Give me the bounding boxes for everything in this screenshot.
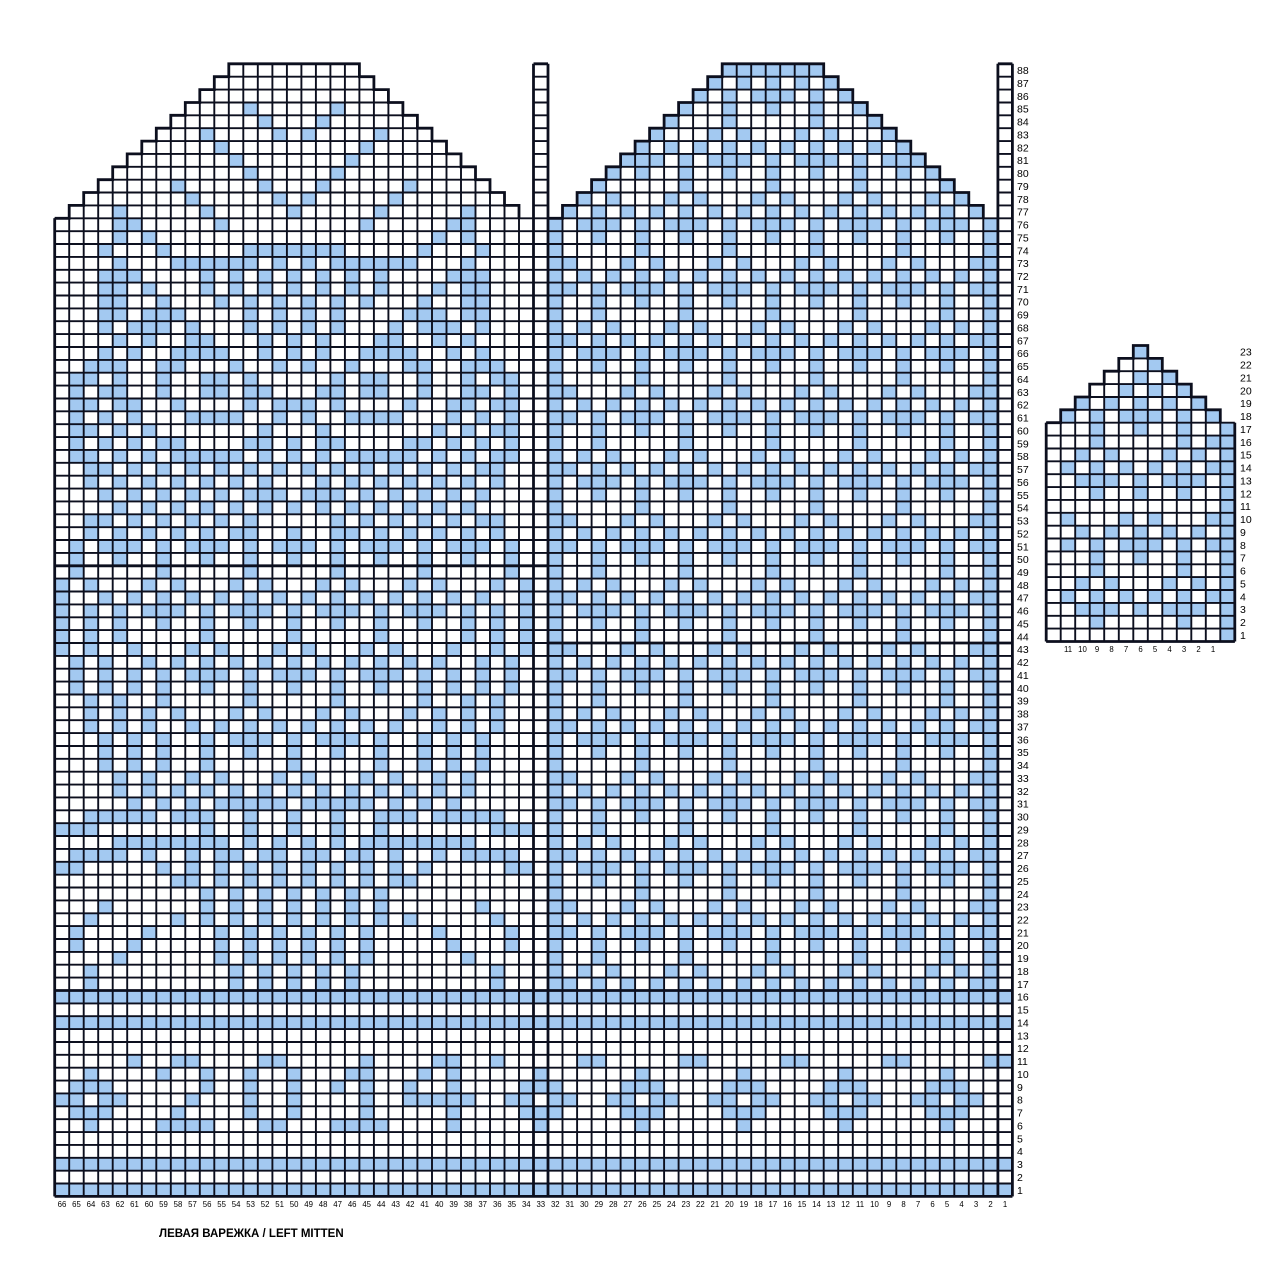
svg-text:2: 2 xyxy=(1240,617,1246,629)
svg-text:65: 65 xyxy=(72,1200,81,1209)
svg-text:10: 10 xyxy=(1078,645,1087,654)
svg-text:3: 3 xyxy=(1182,645,1186,654)
svg-text:59: 59 xyxy=(1017,438,1029,450)
svg-text:18: 18 xyxy=(754,1200,763,1209)
svg-text:53: 53 xyxy=(1017,516,1029,528)
svg-text:55: 55 xyxy=(1017,490,1029,502)
svg-text:15: 15 xyxy=(1017,1005,1029,1017)
svg-text:5: 5 xyxy=(1240,578,1246,590)
svg-text:45: 45 xyxy=(362,1200,371,1209)
svg-text:30: 30 xyxy=(580,1200,589,1209)
svg-text:27: 27 xyxy=(1017,850,1029,862)
svg-text:39: 39 xyxy=(1017,696,1029,708)
svg-text:51: 51 xyxy=(275,1200,284,1209)
svg-text:3: 3 xyxy=(1017,1159,1023,1171)
svg-text:52: 52 xyxy=(1017,528,1029,540)
svg-text:9: 9 xyxy=(887,1200,891,1209)
svg-text:38: 38 xyxy=(1017,709,1029,721)
svg-text:11: 11 xyxy=(1064,645,1072,654)
svg-text:16: 16 xyxy=(783,1200,792,1209)
svg-text:17: 17 xyxy=(769,1200,778,1209)
svg-text:16: 16 xyxy=(1017,992,1029,1004)
svg-text:9: 9 xyxy=(1095,645,1099,654)
svg-text:84: 84 xyxy=(1017,117,1029,129)
svg-text:10: 10 xyxy=(1017,1069,1029,1081)
svg-text:55: 55 xyxy=(217,1200,226,1209)
svg-text:65: 65 xyxy=(1017,361,1029,373)
svg-text:7: 7 xyxy=(1124,645,1128,654)
svg-text:34: 34 xyxy=(522,1200,531,1209)
svg-text:36: 36 xyxy=(493,1200,502,1209)
svg-text:3: 3 xyxy=(1240,604,1246,616)
svg-text:21: 21 xyxy=(711,1200,720,1209)
svg-text:59: 59 xyxy=(159,1200,168,1209)
svg-text:64: 64 xyxy=(87,1200,96,1209)
svg-text:23: 23 xyxy=(1017,902,1029,914)
svg-text:47: 47 xyxy=(333,1200,342,1209)
svg-text:35: 35 xyxy=(507,1200,516,1209)
svg-text:8: 8 xyxy=(1240,540,1246,552)
svg-text:16: 16 xyxy=(1240,437,1252,449)
svg-text:21: 21 xyxy=(1017,927,1029,939)
svg-text:20: 20 xyxy=(725,1200,734,1209)
svg-text:19: 19 xyxy=(740,1200,749,1209)
svg-text:4: 4 xyxy=(1167,645,1172,654)
svg-text:7: 7 xyxy=(1017,1108,1023,1120)
svg-text:23: 23 xyxy=(682,1200,691,1209)
svg-text:88: 88 xyxy=(1017,65,1029,77)
svg-text:4: 4 xyxy=(1017,1146,1023,1158)
svg-text:8: 8 xyxy=(1109,645,1113,654)
svg-text:14: 14 xyxy=(1240,463,1252,475)
svg-text:36: 36 xyxy=(1017,734,1029,746)
svg-text:50: 50 xyxy=(290,1200,299,1209)
svg-text:31: 31 xyxy=(1017,799,1029,811)
svg-text:31: 31 xyxy=(565,1200,574,1209)
svg-text:23: 23 xyxy=(1240,347,1252,359)
svg-text:18: 18 xyxy=(1017,966,1029,978)
svg-text:50: 50 xyxy=(1017,554,1029,566)
svg-text:26: 26 xyxy=(638,1200,647,1209)
svg-text:20: 20 xyxy=(1240,385,1252,397)
svg-text:5: 5 xyxy=(1017,1133,1023,1145)
svg-text:48: 48 xyxy=(319,1200,328,1209)
svg-text:46: 46 xyxy=(1017,606,1029,618)
svg-text:42: 42 xyxy=(1017,657,1029,669)
svg-text:1: 1 xyxy=(1017,1185,1023,1197)
svg-text:82: 82 xyxy=(1017,142,1029,154)
svg-text:45: 45 xyxy=(1017,619,1029,631)
svg-text:14: 14 xyxy=(812,1200,821,1209)
svg-text:8: 8 xyxy=(1017,1095,1023,1107)
svg-text:64: 64 xyxy=(1017,374,1029,386)
svg-text:ЛЕВАЯ ВАРЕЖКА / LEFT MITTEN: ЛЕВАЯ ВАРЕЖКА / LEFT MITTEN xyxy=(159,1228,344,1240)
svg-text:61: 61 xyxy=(130,1200,139,1209)
svg-text:48: 48 xyxy=(1017,580,1029,592)
svg-text:61: 61 xyxy=(1017,413,1029,425)
svg-text:11: 11 xyxy=(1017,1056,1028,1068)
svg-text:24: 24 xyxy=(667,1200,676,1209)
svg-text:27: 27 xyxy=(623,1200,632,1209)
svg-text:63: 63 xyxy=(1017,387,1029,399)
svg-text:49: 49 xyxy=(1017,567,1029,579)
svg-text:13: 13 xyxy=(827,1200,836,1209)
svg-text:26: 26 xyxy=(1017,863,1029,875)
svg-text:87: 87 xyxy=(1017,78,1029,90)
svg-text:21: 21 xyxy=(1240,373,1252,385)
svg-text:8: 8 xyxy=(901,1200,905,1209)
svg-text:75: 75 xyxy=(1017,232,1029,244)
svg-text:77: 77 xyxy=(1017,207,1029,219)
svg-text:79: 79 xyxy=(1017,181,1029,193)
svg-text:60: 60 xyxy=(145,1200,154,1209)
svg-text:24: 24 xyxy=(1017,889,1029,901)
svg-text:9: 9 xyxy=(1240,527,1246,539)
svg-text:74: 74 xyxy=(1017,245,1029,257)
svg-text:33: 33 xyxy=(536,1200,545,1209)
svg-text:72: 72 xyxy=(1017,271,1029,283)
svg-text:76: 76 xyxy=(1017,220,1029,232)
svg-text:37: 37 xyxy=(478,1200,487,1209)
svg-text:10: 10 xyxy=(870,1200,879,1209)
svg-text:67: 67 xyxy=(1017,335,1029,347)
svg-text:3: 3 xyxy=(974,1200,978,1209)
svg-text:33: 33 xyxy=(1017,773,1029,785)
svg-text:34: 34 xyxy=(1017,760,1029,772)
svg-text:7: 7 xyxy=(1240,553,1246,565)
svg-text:2: 2 xyxy=(988,1200,992,1209)
svg-text:15: 15 xyxy=(1240,450,1252,462)
svg-text:29: 29 xyxy=(594,1200,603,1209)
svg-text:54: 54 xyxy=(1017,503,1029,515)
svg-text:56: 56 xyxy=(1017,477,1029,489)
svg-text:11: 11 xyxy=(1240,501,1251,513)
svg-text:60: 60 xyxy=(1017,425,1029,437)
svg-text:54: 54 xyxy=(232,1200,241,1209)
svg-text:69: 69 xyxy=(1017,310,1029,322)
svg-text:22: 22 xyxy=(696,1200,705,1209)
svg-text:28: 28 xyxy=(609,1200,618,1209)
svg-text:28: 28 xyxy=(1017,837,1029,849)
svg-text:13: 13 xyxy=(1240,475,1252,487)
svg-text:43: 43 xyxy=(391,1200,400,1209)
svg-text:58: 58 xyxy=(1017,451,1029,463)
svg-text:35: 35 xyxy=(1017,747,1029,759)
svg-text:44: 44 xyxy=(377,1200,386,1209)
svg-text:37: 37 xyxy=(1017,721,1029,733)
svg-text:12: 12 xyxy=(1017,1043,1029,1055)
svg-text:32: 32 xyxy=(551,1200,560,1209)
svg-text:53: 53 xyxy=(246,1200,255,1209)
svg-text:6: 6 xyxy=(930,1200,934,1209)
svg-text:1: 1 xyxy=(1003,1200,1007,1209)
svg-text:66: 66 xyxy=(1017,348,1029,360)
svg-text:57: 57 xyxy=(188,1200,197,1209)
svg-text:6: 6 xyxy=(1240,566,1246,578)
svg-text:19: 19 xyxy=(1240,398,1252,410)
svg-text:57: 57 xyxy=(1017,464,1029,476)
svg-text:44: 44 xyxy=(1017,631,1029,643)
svg-text:66: 66 xyxy=(58,1200,67,1209)
svg-text:30: 30 xyxy=(1017,812,1029,824)
svg-text:41: 41 xyxy=(420,1200,429,1209)
svg-text:2: 2 xyxy=(1196,645,1200,654)
svg-text:80: 80 xyxy=(1017,168,1029,180)
svg-text:25: 25 xyxy=(653,1200,662,1209)
svg-text:47: 47 xyxy=(1017,593,1029,605)
svg-text:39: 39 xyxy=(449,1200,458,1209)
svg-text:68: 68 xyxy=(1017,323,1029,335)
svg-text:58: 58 xyxy=(174,1200,183,1209)
svg-text:85: 85 xyxy=(1017,104,1029,116)
svg-text:22: 22 xyxy=(1017,915,1029,927)
svg-text:51: 51 xyxy=(1017,541,1029,553)
svg-text:13: 13 xyxy=(1017,1030,1029,1042)
svg-text:4: 4 xyxy=(959,1200,964,1209)
svg-text:6: 6 xyxy=(1017,1120,1023,1132)
svg-text:4: 4 xyxy=(1240,591,1246,603)
svg-text:5: 5 xyxy=(945,1200,950,1209)
svg-text:7: 7 xyxy=(916,1200,920,1209)
svg-text:19: 19 xyxy=(1017,953,1029,965)
svg-text:9: 9 xyxy=(1017,1082,1023,1094)
svg-text:29: 29 xyxy=(1017,824,1029,836)
svg-text:42: 42 xyxy=(406,1200,415,1209)
svg-text:17: 17 xyxy=(1240,424,1252,436)
svg-text:15: 15 xyxy=(798,1200,807,1209)
svg-text:40: 40 xyxy=(1017,683,1029,695)
svg-text:1: 1 xyxy=(1211,645,1215,654)
svg-text:22: 22 xyxy=(1240,360,1252,372)
svg-text:10: 10 xyxy=(1240,514,1252,526)
svg-text:12: 12 xyxy=(1240,488,1252,500)
svg-text:12: 12 xyxy=(841,1200,850,1209)
svg-text:14: 14 xyxy=(1017,1018,1029,1030)
svg-text:52: 52 xyxy=(261,1200,270,1209)
svg-text:43: 43 xyxy=(1017,644,1029,656)
svg-text:49: 49 xyxy=(304,1200,313,1209)
svg-text:62: 62 xyxy=(1017,400,1029,412)
svg-text:70: 70 xyxy=(1017,297,1029,309)
svg-text:2: 2 xyxy=(1017,1172,1023,1184)
svg-text:11: 11 xyxy=(856,1200,864,1209)
svg-text:32: 32 xyxy=(1017,786,1029,798)
svg-text:38: 38 xyxy=(464,1200,473,1209)
svg-text:41: 41 xyxy=(1017,670,1029,682)
svg-text:83: 83 xyxy=(1017,129,1029,141)
svg-text:20: 20 xyxy=(1017,940,1029,952)
svg-text:78: 78 xyxy=(1017,194,1029,206)
svg-text:56: 56 xyxy=(203,1200,212,1209)
svg-text:5: 5 xyxy=(1153,645,1158,654)
svg-text:46: 46 xyxy=(348,1200,357,1209)
svg-text:40: 40 xyxy=(435,1200,444,1209)
svg-text:1: 1 xyxy=(1240,630,1246,642)
svg-text:25: 25 xyxy=(1017,876,1029,888)
svg-text:73: 73 xyxy=(1017,258,1029,270)
svg-text:63: 63 xyxy=(101,1200,110,1209)
svg-text:17: 17 xyxy=(1017,979,1029,991)
svg-text:62: 62 xyxy=(116,1200,125,1209)
svg-text:86: 86 xyxy=(1017,91,1029,103)
svg-text:6: 6 xyxy=(1138,645,1142,654)
svg-text:18: 18 xyxy=(1240,411,1252,423)
svg-text:71: 71 xyxy=(1017,284,1029,296)
svg-text:81: 81 xyxy=(1017,155,1029,167)
